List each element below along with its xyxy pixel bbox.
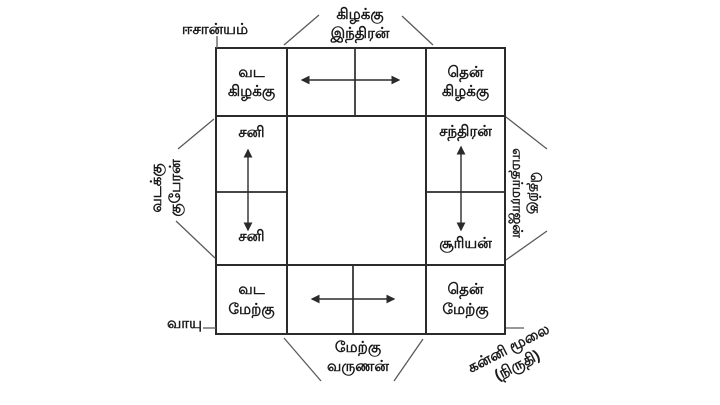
vastu-direction-diagram: ஈசான்யம் கிழக்கு இந்திரன் வடக்கு குபேரன்… xyxy=(0,0,720,405)
cell-label-sani-upper: சனி xyxy=(216,120,287,146)
cell-label-northwest: வட மேற்கு xyxy=(216,265,287,334)
cell-label-southwest: தென் மேற்கு xyxy=(426,265,505,334)
corner-label-northwest-vayu: வாயு xyxy=(156,314,202,333)
direction-label-west-varunan: மேற்கு வருணன் xyxy=(308,338,408,376)
cell-label-southeast: தென் கிழக்கு xyxy=(426,48,505,116)
corner-label-northeast-isanyam: ஈசான்யம் xyxy=(167,20,263,39)
direction-label-east-indiran: கிழக்கு இந்திரன் xyxy=(305,5,415,43)
cell-label-northeast: வட கிழக்கு xyxy=(216,48,287,116)
direction-label-north-kuberan: வடக்கு குபேரன் xyxy=(147,159,185,216)
direction-label-south-yamadharmarajan: தெற்கு எமதர்மராஜன் xyxy=(508,148,544,238)
cell-label-suryan: சூரியன் xyxy=(426,230,505,258)
cell-label-chandran: சந்திரன் xyxy=(426,119,505,145)
connector-north-bottom-diagonal xyxy=(176,221,215,258)
connector-north-top-diagonal xyxy=(178,119,214,149)
cell-label-sani-lower: சனி xyxy=(216,224,287,250)
connector-south-top-diagonal xyxy=(506,117,547,149)
